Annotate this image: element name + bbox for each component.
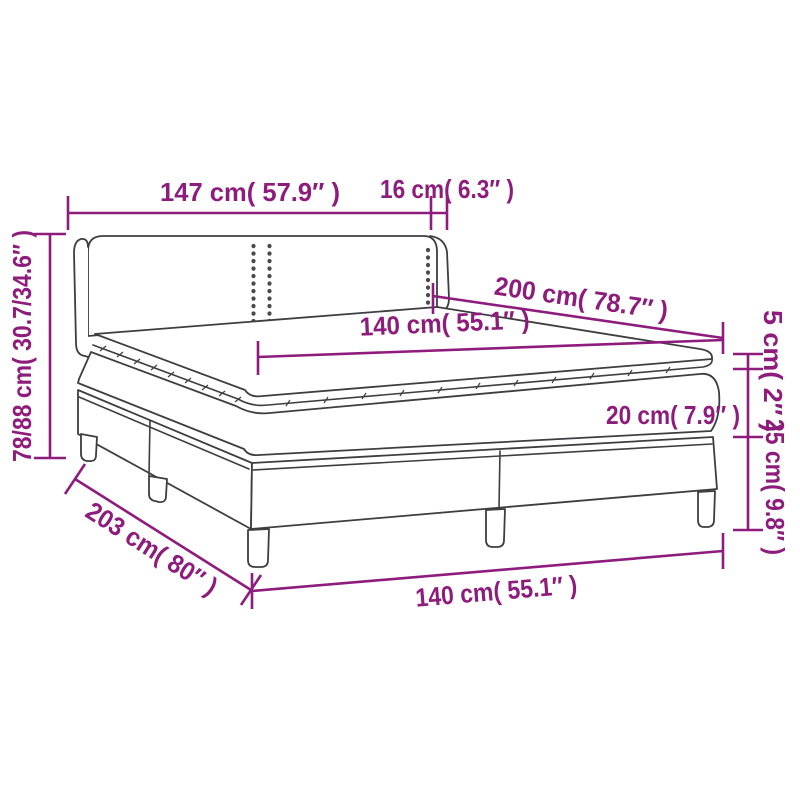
- bed-dimension-diagram: 147 cm( 57.9″ ) 16 cm( 6.3″ ) 78/88 cm( …: [0, 0, 800, 800]
- bed-leg: [248, 529, 269, 567]
- bed-leg: [149, 476, 167, 502]
- bed-leg: [698, 491, 715, 527]
- label-topper-height: 5 cm( 2″ ): [758, 310, 788, 432]
- label-total-length: 203 cm( 80″ ): [81, 495, 224, 601]
- label-base-height: 25 cm( 9.8″ ): [760, 419, 790, 555]
- base-side-seam: [149, 420, 150, 475]
- label-total-height: 78/88 cm( 30.7/34.6″ ): [7, 230, 37, 462]
- headboard-left-wing: [74, 239, 88, 357]
- bed-leg: [81, 434, 97, 461]
- label-mattress-height: 20 cm( 7.9″ ): [606, 400, 740, 430]
- label-wing-depth: 16 cm( 6.3″ ): [380, 174, 514, 204]
- dimension-total-height: [34, 234, 66, 458]
- label-headboard-width: 147 cm( 57.9″ ): [160, 177, 340, 207]
- bed-dimension-diagram-page: 147 cm( 57.9″ ) 16 cm( 6.3″ ) 78/88 cm( …: [0, 0, 800, 800]
- bed-leg: [486, 509, 505, 547]
- base-foot-seam: [499, 451, 500, 508]
